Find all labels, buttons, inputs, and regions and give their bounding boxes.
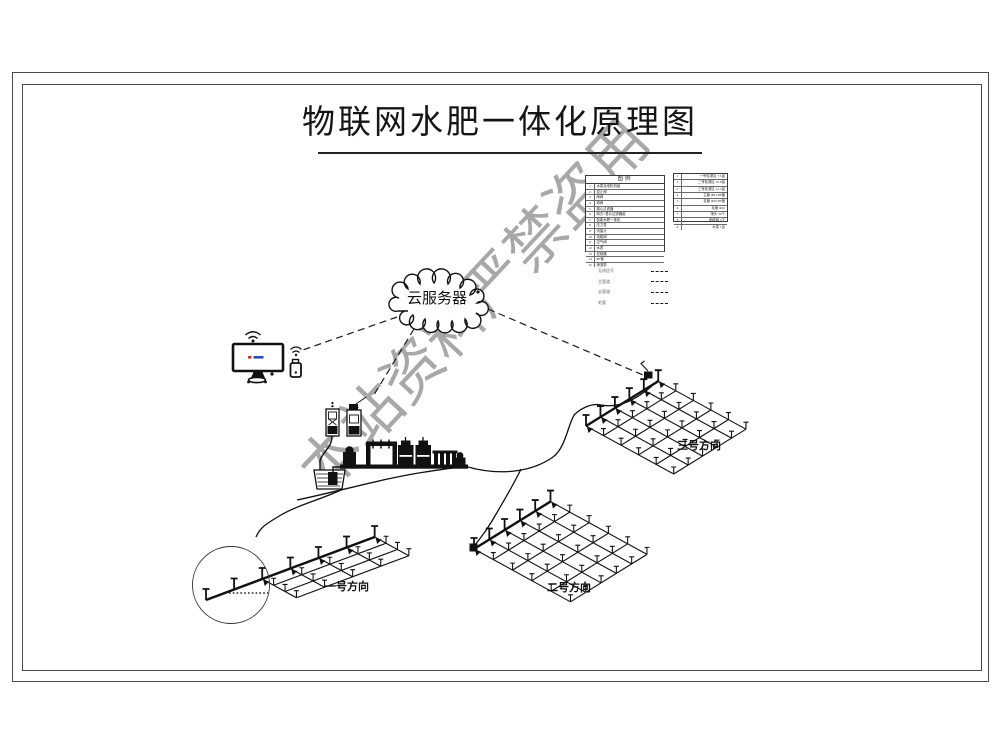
line-type-label: 无线信号 [598, 268, 648, 274]
spec-row-number: 7 [674, 212, 682, 217]
legend-row-label: 水表 [595, 246, 664, 251]
spec-row-value: 水泵 1台 [682, 225, 727, 230]
spec-row-value: 一号轮灌区 7.5亩 [682, 174, 727, 179]
field-2-label: 二号方向 [547, 579, 591, 595]
legend-row-number: 7 [586, 218, 595, 223]
field-3-valve-head [644, 372, 653, 379]
wifi-icon-monitor [246, 332, 261, 343]
legend-row-number: 8 [586, 223, 595, 228]
legend-table: 图例 1水泵及电机机组2逆止阀3闸阀4球阀5离心过滤器6网式+叠片过滤器组7智能… [585, 175, 665, 252]
spec-row-number: 8 [674, 218, 682, 223]
legend-row-label: PE管 [595, 257, 664, 262]
computer-monitor-icon [233, 332, 283, 384]
legend-row-number: 9 [586, 229, 595, 234]
pump-and-fertilizer-station [314, 361, 653, 552]
spec-row-value: 支管 Φ50 PE管 [682, 199, 727, 204]
legend-row-label: 空气阀 [595, 240, 664, 245]
drawing-sheet: 物联网水肥一体化原理图 本站资料严禁盗用 图例 1水泵及电机机组2逆止阀3闸阀4… [0, 0, 1000, 750]
detail-circle [193, 547, 270, 624]
legend-row-label: 控制器 [595, 252, 664, 257]
irrigation-fields [203, 370, 749, 602]
legend-row-number: 2 [586, 190, 595, 195]
spec-row-value: 主管 Φ63 PE管 [682, 193, 727, 198]
spec-row-value: 二号轮灌区 10.8亩 [682, 180, 727, 185]
legend-row-number: 3 [586, 195, 595, 200]
spec-row-value: 电磁阀 3个 [682, 218, 727, 223]
irrigation-field-3 [583, 370, 749, 474]
legend-row-label: 逆止阀 [595, 190, 664, 195]
line-type-row: 支管道 [598, 287, 668, 298]
legend-table-title: 图例 [586, 176, 664, 184]
irrigation-field-1 [203, 526, 412, 600]
legend-row-number: 13 [586, 252, 595, 257]
cloud-dot [476, 290, 479, 293]
legend-row-label: 网式+叠片过滤器组 [595, 212, 664, 217]
legend-row-label: 闸阀 [595, 195, 664, 200]
legend-row-number: 5 [586, 207, 595, 212]
legend-row-label: 流量计 [595, 229, 664, 234]
line-type-row: 无线信号 [598, 266, 668, 277]
legend-row-number: 10 [586, 235, 595, 240]
spec-row-number: 4 [674, 193, 682, 198]
legend-row-number: 1 [586, 184, 595, 189]
legend-row-number: 4 [586, 201, 595, 206]
legend-row-label: 智能水肥一体机 [595, 218, 664, 223]
cloud-server-label: 云服务器 [407, 290, 467, 307]
line-type-label: 支管道 [598, 289, 648, 295]
legend-row-label: 球阀 [595, 201, 664, 206]
diagram-title: 物联网水肥一体化原理图 [0, 95, 1000, 143]
spec-table: 1一号轮灌区 7.5亩2二号轮灌区 10.8亩3三号轮灌区 12.5亩4主管 Φ… [673, 173, 728, 222]
legend-row-number: 14 [586, 257, 595, 262]
valve-manifold [433, 451, 458, 466]
line-type-label: 毛管 [598, 300, 648, 306]
legend-row-label: 电磁阀 [595, 235, 664, 240]
line-type-legend: 无线信号主管道支管道毛管 [598, 266, 668, 308]
legend-row-number: 6 [586, 212, 595, 217]
field-3-antenna [641, 361, 648, 371]
pipe-to-field-1 [256, 490, 341, 537]
line-type-sample [651, 271, 668, 272]
spec-row-value: 喷头 30个 [682, 212, 727, 217]
filter-tanks [398, 437, 431, 466]
screen-dash-red [248, 356, 252, 359]
spec-row-value: 三号轮灌区 12.5亩 [682, 187, 727, 192]
line-type-label: 主管道 [598, 279, 648, 285]
spec-row-number: 9 [674, 225, 682, 230]
line-type-sample [651, 281, 668, 282]
legend-row-number: 11 [586, 240, 595, 245]
title-underline [318, 152, 702, 154]
field-3-label: 三号方向 [677, 437, 721, 453]
water-pool [314, 467, 345, 489]
spec-row-number: 5 [674, 199, 682, 204]
spec-row-number: 1 [674, 174, 682, 179]
spec-row-value: 毛管 Φ16 [682, 206, 727, 211]
field-1-label: 一号方向 [325, 578, 369, 594]
line-type-sample [651, 303, 668, 304]
pipe-to-field-3 [468, 386, 652, 472]
spec-row: 9水泵 1台 [674, 225, 727, 230]
spec-row-number: 2 [674, 180, 682, 185]
legend-row-label: 压力表 [595, 223, 664, 228]
legend-row-number: 12 [586, 246, 595, 251]
spec-row-number: 6 [674, 206, 682, 211]
spec-row-number: 3 [674, 187, 682, 192]
line-type-sample [651, 292, 668, 293]
legend-row-label: 水泵及电机机组 [595, 184, 664, 189]
screen-dash-blue [254, 356, 264, 359]
line-type-row: 毛管 [598, 298, 668, 309]
line-type-row: 主管道 [598, 277, 668, 288]
legend-row-label: 离心过滤器 [595, 207, 664, 212]
legend-row-number: 15 [586, 263, 595, 268]
phone-icon [291, 347, 302, 377]
cloud-server: 云服务器 [389, 269, 488, 333]
wifi-icon-phone [291, 347, 302, 356]
